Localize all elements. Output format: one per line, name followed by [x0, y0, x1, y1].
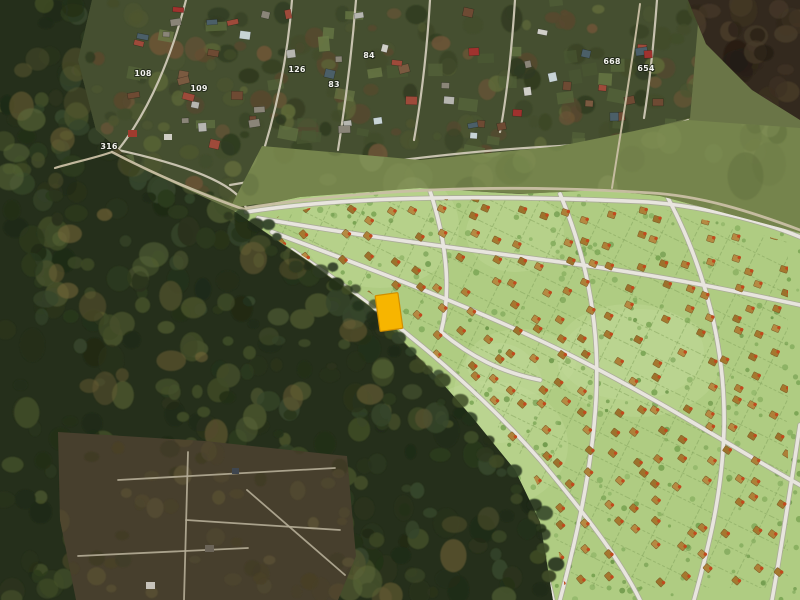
- plan-tree-dot: [668, 524, 671, 527]
- plan-tree-dot: [516, 321, 519, 324]
- tree-blob: [248, 218, 264, 232]
- tree-blob: [312, 264, 328, 278]
- tree-blob: [143, 192, 157, 202]
- selected-plot-highlight[interactable]: [375, 293, 403, 332]
- plan-tree-dot: [551, 450, 555, 454]
- clearing-building: [232, 468, 239, 474]
- tree-blob: [548, 557, 564, 571]
- plan-tree-dot: [341, 270, 345, 274]
- tree-blob: [87, 567, 106, 585]
- plan-tree-dot: [641, 351, 646, 356]
- plan-tree-dot: [796, 289, 799, 292]
- plan-tree-dot: [707, 575, 710, 578]
- tree-blob: [545, 12, 561, 23]
- plan-tree-dot: [529, 237, 533, 241]
- tree-blob: [85, 52, 95, 63]
- tree-blob: [142, 121, 152, 130]
- tree-blob: [255, 472, 267, 487]
- plan-tree-dot: [348, 280, 353, 285]
- plan-tree-dot: [591, 574, 595, 578]
- plan-tree-dot: [550, 241, 556, 247]
- tree-blob: [108, 115, 119, 126]
- plan-tree-dot: [651, 389, 657, 395]
- plan-tree-dot: [687, 377, 693, 383]
- tree-blob: [387, 8, 401, 19]
- tree-blob: [345, 23, 357, 32]
- plan-tree-dot: [612, 277, 618, 283]
- tree-blob: [89, 551, 105, 566]
- tree-blob: [38, 18, 53, 29]
- plan-tree-dot: [607, 586, 612, 591]
- plan-tree-dot: [793, 490, 797, 494]
- tree-blob: [298, 339, 310, 347]
- tree-blob: [353, 566, 382, 599]
- tree-blob: [539, 114, 552, 131]
- village-house: [354, 12, 364, 19]
- village-house: [497, 122, 507, 131]
- tree-blob: [206, 528, 225, 546]
- village-house: [444, 96, 455, 104]
- village-house: [128, 130, 137, 137]
- plan-tree-dot: [588, 380, 593, 385]
- plan-tree-dot: [599, 334, 604, 339]
- plan-tree-dot: [759, 414, 763, 418]
- clearing-building: [146, 582, 155, 589]
- plan-tree-dot: [685, 385, 690, 390]
- tree-blob: [212, 490, 225, 504]
- plan-tree-dot: [716, 221, 719, 224]
- village-house: [239, 31, 251, 40]
- tree-blob: [350, 284, 361, 293]
- tree-blob: [239, 68, 259, 83]
- tree-blob: [185, 37, 206, 61]
- garden-plot: [581, 62, 598, 76]
- plot-number-label: 316: [100, 142, 118, 151]
- plan-tree-dot: [399, 255, 404, 260]
- plan-tree-dot: [590, 584, 596, 590]
- tree-blob: [518, 519, 537, 539]
- plan-tree-dot: [670, 357, 675, 362]
- tree-blob: [274, 430, 284, 438]
- tree-blob: [321, 478, 335, 489]
- plan-tree-dot: [751, 539, 756, 544]
- tree-blob: [750, 28, 765, 43]
- tree-blob: [174, 465, 192, 485]
- plan-tree-dot: [456, 203, 461, 208]
- village-house: [198, 123, 207, 132]
- plan-tree-dot: [559, 445, 562, 448]
- plan-tree-dot: [504, 396, 510, 402]
- plan-tree-dot: [514, 215, 519, 220]
- plan-tree-dot: [686, 558, 690, 562]
- plan-tree-dot: [732, 570, 736, 574]
- tree-blob: [348, 418, 370, 442]
- plot-number-label: 83: [328, 80, 340, 89]
- village-house: [170, 18, 182, 26]
- tree-blob: [92, 85, 103, 93]
- plan-tree-dot: [739, 543, 743, 547]
- plan-tree-dot: [755, 342, 759, 346]
- garden-plot: [563, 50, 577, 64]
- tree-blob: [157, 190, 175, 208]
- plan-tree-dot: [762, 496, 768, 502]
- plan-tree-dot: [517, 235, 521, 239]
- plan-tree-dot: [423, 251, 428, 256]
- plan-tree-dot: [534, 416, 537, 419]
- tree-blob: [197, 407, 210, 418]
- plan-tree-dot: [793, 587, 797, 591]
- plan-tree-dot: [757, 303, 763, 309]
- plan-tree-dot: [403, 309, 409, 315]
- tree-blob: [332, 469, 344, 478]
- plot-number-label: 84: [363, 51, 375, 60]
- tree-blob: [371, 404, 391, 427]
- plan-tree-dot: [668, 483, 672, 487]
- tree-blob: [224, 573, 242, 585]
- garden-plot: [556, 91, 574, 105]
- tree-blob: [173, 251, 188, 270]
- plan-tree-dot: [428, 232, 433, 237]
- plan-tree-dot: [665, 438, 668, 441]
- tree-blob: [15, 490, 36, 509]
- tree-blob: [31, 152, 45, 168]
- tree-blob: [17, 108, 45, 131]
- tree-blob: [641, 132, 666, 149]
- plan-tree-dot: [331, 213, 335, 217]
- plan-tree-dot: [625, 474, 631, 480]
- plan-tree-dot: [761, 581, 766, 586]
- plan-tree-dot: [498, 349, 502, 353]
- tree-blob: [178, 217, 200, 246]
- clearing-building: [205, 545, 214, 552]
- tree-blob: [643, 6, 656, 22]
- tree-blob: [217, 293, 235, 311]
- tree-blob: [354, 497, 374, 520]
- tree-blob: [777, 64, 794, 75]
- tree-blob: [63, 310, 79, 323]
- plan-tree-dot: [657, 512, 661, 516]
- plan-tree-dot: [543, 442, 548, 447]
- tree-blob: [533, 583, 549, 596]
- tree-blob: [120, 235, 132, 247]
- tree-blob: [406, 521, 420, 539]
- village-house: [391, 60, 402, 66]
- tree-blob: [50, 127, 74, 151]
- tree-blob: [320, 368, 340, 383]
- plan-tree-dot: [734, 411, 739, 416]
- tree-blob: [559, 12, 575, 30]
- plan-tree-dot: [605, 409, 608, 412]
- plan-tree-dot: [378, 263, 382, 267]
- plan-tree-dot: [674, 446, 680, 452]
- garden-plot: [458, 97, 478, 112]
- tree-blob: [406, 5, 428, 24]
- village-house: [338, 126, 350, 134]
- plan-tree-dot: [470, 401, 474, 405]
- plan-tree-dot: [731, 376, 734, 379]
- tree-blob: [158, 321, 175, 334]
- clearing-area: [50, 431, 363, 600]
- plan-tree-dot: [704, 445, 709, 450]
- plan-tree-dot: [491, 309, 497, 315]
- tree-blob: [369, 533, 384, 548]
- tree-blob: [402, 485, 413, 493]
- plan-tree-dot: [554, 211, 560, 217]
- plan-tree-dot: [733, 269, 739, 275]
- tree-blob: [339, 320, 367, 342]
- plan-tree-dot: [794, 411, 799, 416]
- plan-tree-dot: [366, 274, 371, 279]
- village-house: [335, 56, 342, 62]
- tree-blob: [522, 20, 531, 30]
- tree-blob: [219, 391, 235, 403]
- village-house: [513, 109, 523, 116]
- plan-tree-dot: [703, 261, 706, 264]
- tree-blob: [271, 358, 283, 371]
- tree-blob: [292, 585, 302, 598]
- plot-number-label: 108: [134, 69, 152, 78]
- tree-blob: [135, 494, 150, 507]
- plot-number-label: 654: [637, 64, 655, 73]
- tree-blob: [3, 200, 20, 221]
- tree-blob: [219, 178, 238, 201]
- tree-blob: [774, 25, 798, 42]
- tree-blob: [107, 266, 132, 291]
- plan-tree-dot: [778, 481, 784, 487]
- plan-tree-dot: [742, 239, 746, 243]
- tree-blob: [144, 471, 159, 481]
- tree-blob: [48, 173, 63, 189]
- plan-tree-dot: [560, 254, 565, 259]
- plan-tree-dot: [671, 593, 674, 596]
- plan-tree-dot: [361, 211, 365, 215]
- tree-blob: [536, 506, 553, 521]
- tree-blob: [135, 297, 150, 313]
- tree-blob: [18, 129, 36, 144]
- map-canvas[interactable]: 3161081091268384668654: [0, 0, 800, 600]
- tree-blob: [513, 149, 536, 173]
- tree-blob: [124, 3, 144, 26]
- plan-tree-dot: [633, 318, 637, 322]
- tree-blob: [677, 24, 691, 35]
- tree-blob: [106, 585, 116, 593]
- plan-tree-dot: [606, 400, 610, 404]
- map-viewport: 3161081091268384668654: [0, 0, 800, 600]
- village-house: [173, 7, 184, 13]
- plan-tree-dot: [389, 218, 394, 223]
- tree-blob: [160, 440, 180, 457]
- tree-blob: [68, 257, 83, 269]
- village-house: [523, 87, 531, 96]
- plan-tree-dot: [646, 322, 652, 328]
- plan-tree-dot: [771, 316, 774, 319]
- tree-blob: [445, 129, 464, 152]
- tree-blob: [52, 213, 63, 226]
- plan-tree-dot: [665, 390, 669, 394]
- tree-blob: [20, 328, 45, 362]
- village-house: [209, 139, 221, 150]
- tree-blob: [206, 59, 216, 71]
- tree-blob: [263, 555, 275, 564]
- tree-blob: [49, 264, 64, 282]
- plan-tree-dot: [693, 465, 698, 470]
- plan-tree-dot: [721, 222, 725, 226]
- tree-blob: [74, 339, 87, 354]
- tree-blob: [189, 556, 200, 564]
- plan-tree-dot: [593, 242, 597, 246]
- tree-blob: [705, 144, 723, 163]
- plan-tree-dot: [793, 374, 798, 379]
- tree-blob: [143, 136, 161, 152]
- village-house: [231, 91, 243, 100]
- tree-blob: [587, 24, 598, 34]
- plan-tree-dot: [644, 335, 648, 339]
- tree-blob: [216, 271, 239, 292]
- tree-blob: [372, 359, 394, 378]
- tree-blob: [314, 431, 336, 456]
- tree-blob: [492, 530, 507, 542]
- tree-blob: [3, 143, 29, 162]
- plan-tree-dot: [484, 392, 489, 397]
- tree-blob: [58, 225, 82, 244]
- garden-plot: [511, 47, 521, 56]
- tree-blob: [368, 25, 377, 31]
- tree-blob: [289, 261, 303, 273]
- tree-blob: [284, 409, 297, 420]
- tree-blob: [392, 332, 406, 344]
- plan-tree-dot: [787, 277, 791, 281]
- tree-blob: [280, 251, 290, 259]
- tree-blob: [156, 350, 186, 371]
- tree-blob: [116, 368, 129, 382]
- plan-tree-dot: [597, 477, 603, 483]
- tree-blob: [357, 384, 384, 405]
- plan-tree-dot: [465, 230, 471, 236]
- plan-tree-dot: [560, 245, 563, 248]
- tree-blob: [496, 468, 506, 477]
- tree-blob: [405, 568, 425, 583]
- tree-blob: [542, 570, 556, 582]
- plan-tree-dot: [747, 555, 751, 559]
- tree-blob: [489, 455, 505, 468]
- tree-blob: [240, 131, 249, 138]
- tree-blob: [507, 464, 522, 477]
- tree-blob: [653, 27, 672, 50]
- village-house: [653, 99, 664, 106]
- plan-tree-dot: [588, 245, 593, 250]
- tree-blob: [248, 320, 259, 329]
- tree-blob: [500, 510, 514, 522]
- tree-blob: [383, 393, 396, 405]
- plan-tree-dot: [591, 552, 597, 558]
- tree-blob: [14, 397, 39, 428]
- plan-tree-dot: [690, 496, 696, 502]
- plan-tree-dot: [597, 411, 603, 417]
- tree-blob: [728, 152, 764, 200]
- tree-blob: [352, 301, 364, 311]
- village-house: [644, 50, 653, 58]
- tree-blob: [290, 481, 305, 500]
- plan-tree-dot: [655, 255, 660, 260]
- tree-blob: [699, 4, 721, 18]
- tree-blob: [224, 161, 241, 177]
- tree-blob: [303, 263, 312, 270]
- plan-tree-dot: [622, 580, 626, 584]
- tree-blob: [276, 114, 287, 124]
- tree-blob: [433, 133, 441, 141]
- plan-tree-dot: [792, 590, 795, 593]
- plan-tree-dot: [708, 401, 713, 406]
- tree-blob: [435, 373, 451, 387]
- tree-blob: [195, 278, 212, 301]
- tree-blob: [257, 46, 272, 61]
- village-house: [206, 19, 217, 25]
- plan-tree-dot: [555, 421, 559, 425]
- plan-tree-dot: [425, 261, 431, 267]
- tree-blob: [357, 458, 372, 473]
- tree-blob: [224, 49, 237, 60]
- village-house: [563, 81, 572, 90]
- village-house: [191, 101, 200, 109]
- tree-blob: [57, 283, 78, 299]
- garden-plot: [477, 53, 494, 63]
- tree-blob: [262, 59, 283, 74]
- plan-tree-dot: [587, 403, 591, 407]
- village-house: [248, 119, 260, 128]
- tree-blob: [462, 412, 478, 425]
- plan-tree-dot: [726, 405, 731, 410]
- tree-blob: [196, 228, 215, 249]
- plan-tree-dot: [777, 521, 782, 526]
- tree-blob: [328, 262, 339, 271]
- village-house: [548, 72, 558, 82]
- village-house: [524, 60, 532, 68]
- plan-tree-dot: [555, 584, 559, 588]
- tree-blob: [34, 490, 47, 503]
- plan-tree-dot: [785, 342, 789, 346]
- plan-tree-dot: [485, 326, 489, 330]
- plan-tree-dot: [559, 276, 565, 282]
- garden-plot: [322, 27, 334, 39]
- tree-blob: [63, 416, 78, 427]
- village-house: [254, 106, 265, 113]
- plan-tree-dot: [738, 507, 741, 510]
- village-house: [610, 112, 619, 121]
- tree-blob: [168, 205, 188, 219]
- garden-plot: [297, 118, 316, 127]
- tree-blob: [410, 482, 424, 498]
- plan-tree-dot: [625, 401, 628, 404]
- plan-tree-dot: [588, 395, 593, 400]
- plan-tree-dot: [628, 317, 632, 321]
- tree-blob: [223, 336, 234, 345]
- plan-tree-dot: [599, 485, 602, 488]
- plan-tree-dot: [507, 443, 511, 447]
- plan-tree-dot: [745, 368, 749, 372]
- tree-blob: [272, 336, 285, 346]
- tree-blob: [262, 219, 275, 230]
- plan-tree-dot: [371, 211, 376, 216]
- tree-blob: [769, 0, 789, 19]
- tree-blob: [21, 253, 43, 277]
- tree-blob: [132, 256, 159, 277]
- tree-blob: [22, 551, 39, 573]
- tree-blob: [478, 507, 499, 530]
- plan-tree-dot: [353, 221, 357, 225]
- garden-plot: [428, 64, 442, 77]
- tree-blob: [241, 364, 254, 380]
- tree-blob: [13, 380, 27, 391]
